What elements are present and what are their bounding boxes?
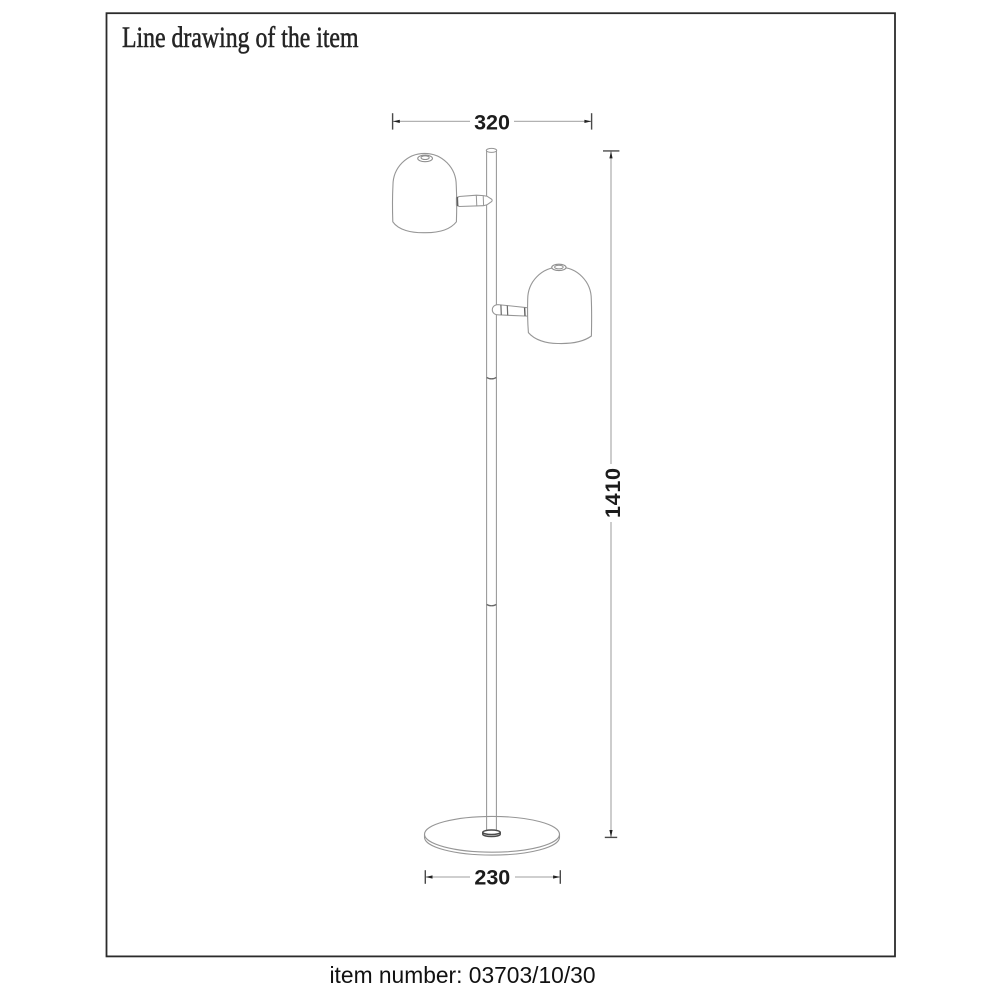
svg-text:1410: 1410 bbox=[601, 468, 625, 518]
svg-text:230: 230 bbox=[474, 866, 510, 890]
svg-text:item number: 03703/10/30: item number: 03703/10/30 bbox=[330, 962, 596, 988]
svg-text:320: 320 bbox=[474, 110, 510, 134]
svg-text:Line drawing of the item: Line drawing of the item bbox=[122, 21, 359, 54]
